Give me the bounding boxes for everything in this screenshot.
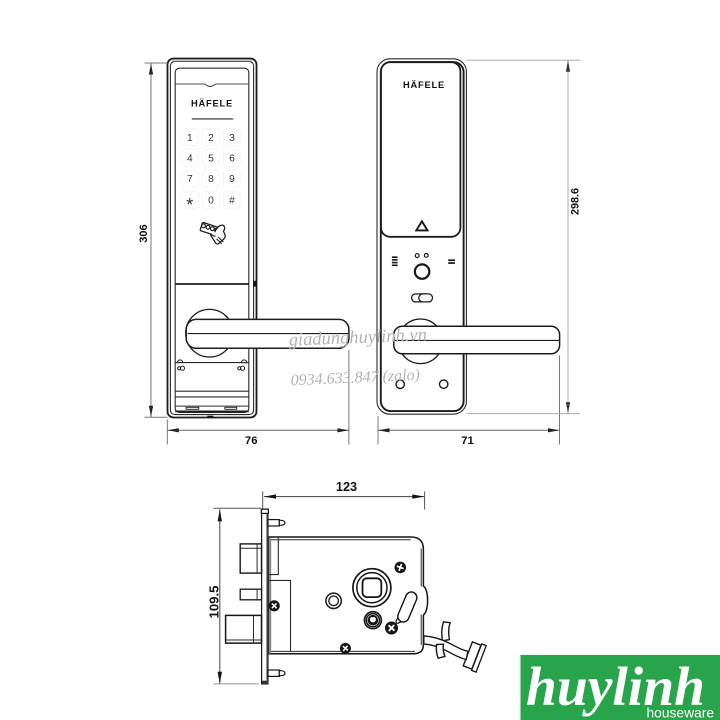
- svg-text:*: *: [186, 195, 193, 215]
- svg-text:#: #: [229, 196, 235, 207]
- svg-text:HÄFELE: HÄFELE: [191, 99, 233, 109]
- svg-text:6: 6: [229, 154, 235, 165]
- svg-text:109.5: 109.5: [206, 585, 221, 618]
- svg-text:HÄFELE: HÄFELE: [403, 80, 445, 90]
- svg-text:123: 123: [336, 479, 357, 494]
- svg-text:2: 2: [208, 133, 214, 144]
- svg-text:8: 8: [208, 174, 214, 185]
- svg-text:1: 1: [187, 133, 193, 144]
- svg-text:71: 71: [461, 435, 474, 447]
- svg-text:0: 0: [208, 196, 214, 207]
- svg-text:3: 3: [229, 133, 235, 144]
- svg-text:4: 4: [187, 154, 193, 165]
- svg-text:306: 306: [138, 224, 150, 242]
- svg-text:298.6: 298.6: [569, 188, 581, 215]
- svg-text:7: 7: [187, 174, 193, 185]
- svg-text:76: 76: [245, 435, 258, 447]
- svg-text:5: 5: [208, 154, 214, 165]
- svg-text:9: 9: [229, 174, 235, 185]
- svg-text:houseware: houseware: [647, 706, 715, 720]
